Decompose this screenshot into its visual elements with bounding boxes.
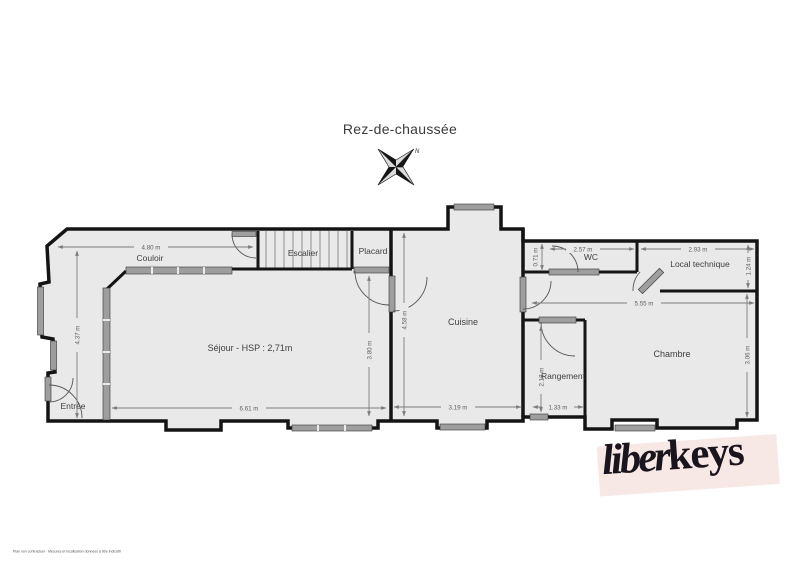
hall-door-leaf [520,277,526,312]
label-entree: Entrée [60,401,85,411]
rangement-door-leaf [539,317,576,323]
label-cuisine: Cuisine [448,317,478,327]
dim-cuisine-height: 4.58 m [402,311,409,330]
entree-left-window-2 [51,341,57,370]
cuisine-bottom-window [440,424,485,430]
compass-rose: N [378,149,420,185]
entree-door-leaf [45,377,51,401]
label-rangement: Rangement [541,371,586,381]
logo-wordmark-script: liber [600,433,669,485]
couloir-door-leaf [232,232,256,237]
dim-rangement-width: 1.33 m [549,405,568,412]
label-chambre: Chambre [653,349,690,359]
dim-right-wing-width: 5.55 m [635,301,654,308]
dim-couloir-width: 4.80 m [142,245,161,252]
liberkeys-logo: liberkeys [592,415,793,506]
label-local-technique: Local technique [670,259,730,269]
dim-chambre-height: 3.06 m [745,346,752,365]
dim-sejour-width: 6.61 m [240,406,259,413]
label-wc: WC [584,252,598,262]
sejour-left-window [103,288,110,420]
label-sejour: Séjour - HSP : 2,71m [208,343,293,353]
dim-local-technique-height: 1.24 m [746,257,753,276]
sejour-bottom-window [292,425,372,431]
dim-entree-height: 4.37 m [75,326,82,345]
entree-left-window-1 [38,287,44,335]
logo-wordmark: liberkeys [599,419,745,494]
building-footprint [40,207,757,430]
compass-north-label: N [415,149,420,155]
floorplan-page: Rez-de-chaussée N [0,0,800,566]
label-placard: Placard [359,246,388,256]
label-escalier: Escalier [288,248,318,258]
dim-wc-height: 0.71 m [533,248,540,267]
wc-door-leaf [549,269,599,275]
dim-cuisine-width: 3.19 m [449,405,468,412]
plan-disclaimer: Plan non contractuel - Mesures et locali… [13,550,121,554]
sejour-top-window [126,267,232,274]
label-couloir: Couloir [137,253,164,263]
dim-sejour-height: 3.80 m [367,341,374,360]
sejour-door-leaf [354,267,389,273]
chimney-top-window [454,204,494,210]
cuisine-door-leaf [389,276,395,312]
dim-local-technique-width: 2.93 m [689,247,708,254]
logo-wordmark-bold: keys [666,427,744,479]
rangement-bottom-window [530,414,548,420]
